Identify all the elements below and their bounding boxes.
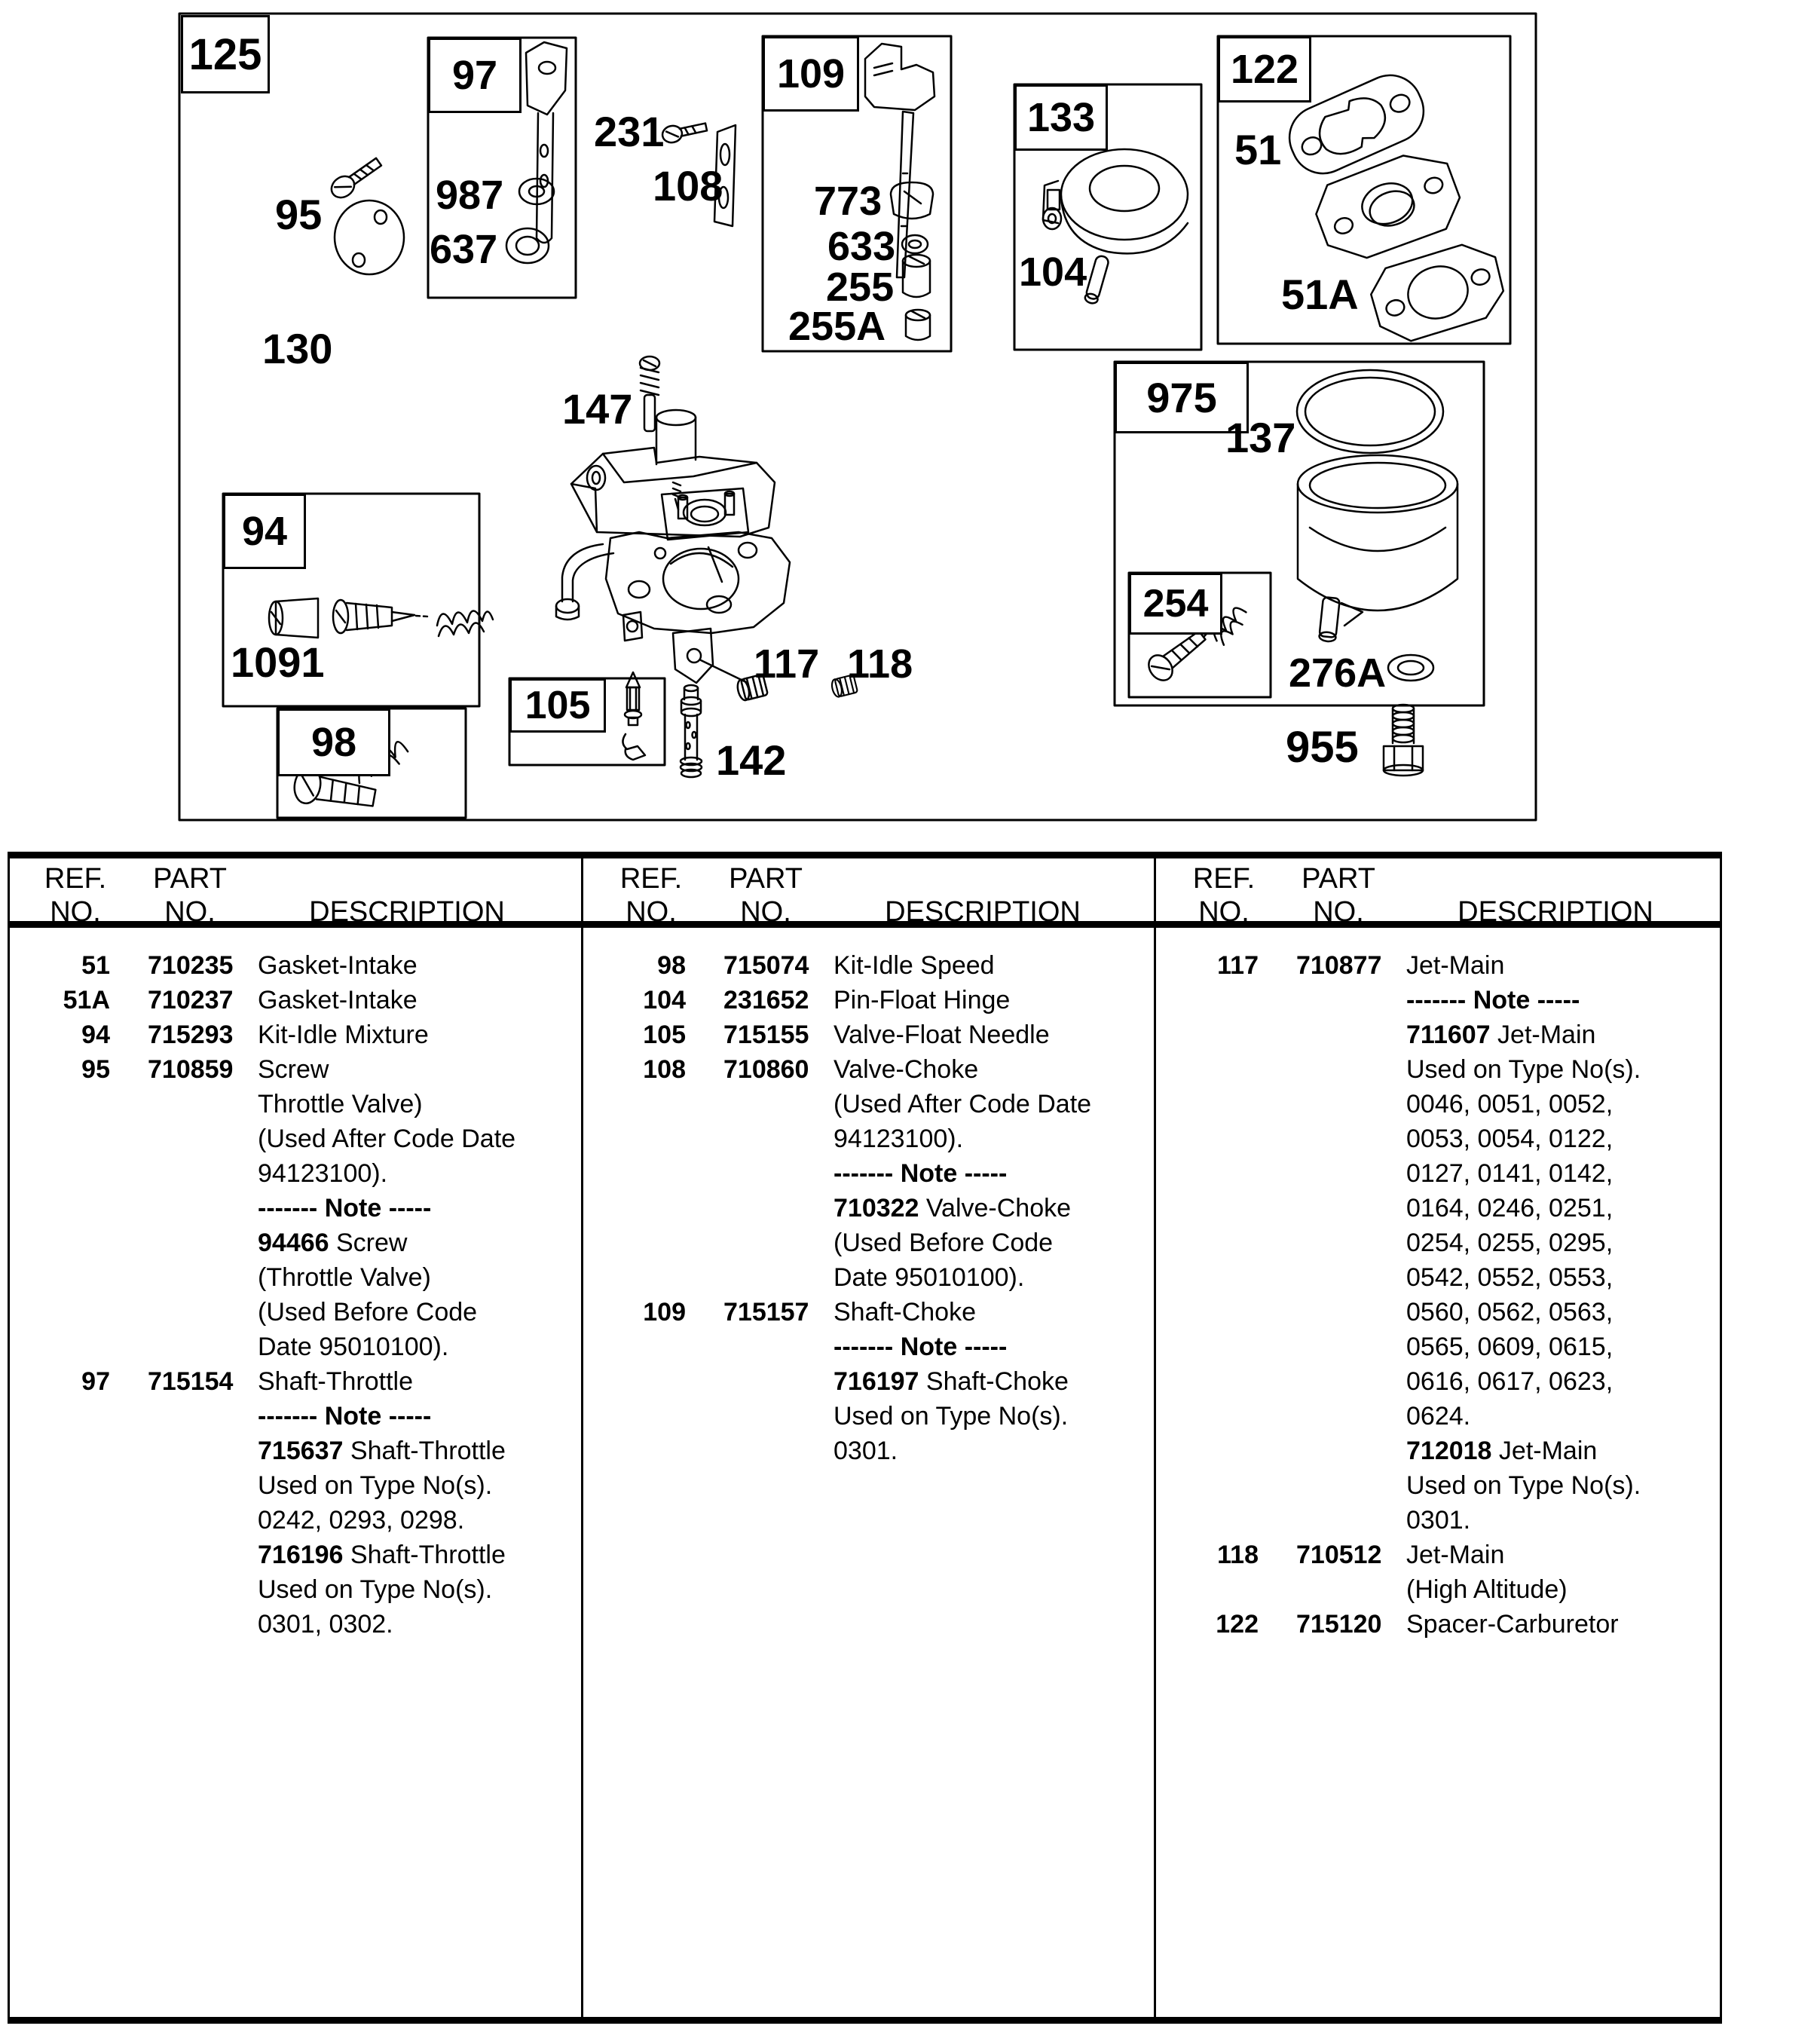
description-line: 0301, 0302. [258,1607,581,1642]
description: Jet-Main------- Note -----711607 Jet-Mai… [1406,948,1720,1538]
description: Kit-Idle Mixture [258,1017,581,1052]
header-part-no: PARTNO. [713,862,818,929]
ref-no: 122 [1177,1607,1259,1642]
part-no: 710237 [148,983,233,1017]
header-description: DESCRIPTION [264,895,550,929]
part-no: 710512 [1296,1538,1381,1572]
table-column-body: 51710235Gasket-Intake51A710237Gasket-Int… [8,948,581,1642]
description-line: 0053, 0054, 0122, [1406,1122,1720,1156]
description-line: Valve-Choke [834,1052,1154,1087]
table-column-body: 117710877Jet-Main------- Note -----71160… [1156,948,1720,1642]
description-line: 0616, 0617, 0623, [1406,1364,1720,1399]
description-line: 94123100). [258,1156,581,1191]
description-line: (Throttle Valve) [258,1260,581,1295]
description-line: ------- Note ----- [258,1399,581,1434]
ref-no: 104 [604,983,686,1017]
table-column-body: 98715074Kit-Idle Speed104231652Pin-Float… [583,948,1154,1468]
description-line: Screw [258,1052,581,1087]
description-line: 0254, 0255, 0295, [1406,1226,1720,1260]
ref-no: 108 [604,1052,686,1087]
table-row: 105715155Valve-Float Needle [583,1017,1154,1052]
description-line: Valve-Float Needle [834,1017,1154,1052]
table-row: 109715157Shaft-Choke------- Note -----71… [583,1295,1154,1468]
description: Gasket-Intake [258,983,581,1017]
description-line: Used on Type No(s). [258,1468,581,1503]
description-line: 711607 Jet-Main [1406,1017,1720,1052]
description-line: Date 95010100). [258,1330,581,1364]
description: Valve-Choke(Used After Code Date94123100… [834,1052,1154,1295]
description-line: 0127, 0141, 0142, [1406,1156,1720,1191]
description-line: 710322 Valve-Choke [834,1191,1154,1226]
table-row: 98715074Kit-Idle Speed [583,948,1154,983]
description-line: 94466 Screw [258,1226,581,1260]
description: Shaft-Throttle------- Note -----715637 S… [258,1364,581,1642]
part-no: 715120 [1296,1607,1381,1642]
description-line: Kit-Idle Speed [834,948,1154,983]
description-line: 0301. [1406,1503,1720,1538]
description-line: (Used Before Code [834,1226,1154,1260]
description-line: 0301. [834,1434,1154,1468]
description-line: 0046, 0051, 0052, [1406,1087,1720,1122]
description-line: Used on Type No(s). [258,1572,581,1607]
description-line: Gasket-Intake [258,948,581,983]
description-line: 716197 Shaft-Choke [834,1364,1154,1399]
description-line: ------- Note ----- [1406,983,1720,1017]
ref-no: 98 [604,948,686,983]
description-line: (High Altitude) [1406,1572,1720,1607]
ref-no: 51A [29,983,110,1017]
part-no: 715074 [723,948,809,983]
description-line: Date 95010100). [834,1260,1154,1295]
table-row: 122715120Spacer-Carburetor [1156,1607,1720,1642]
table-column-header: REF.NO.PARTNO.DESCRIPTION [583,862,1154,927]
header-description: DESCRIPTION [840,895,1126,929]
description-line: Jet-Main [1406,948,1720,983]
ref-no: 51 [29,948,110,983]
ref-no: 105 [604,1017,686,1052]
ref-no: 118 [1177,1538,1259,1572]
description-line: ------- Note ----- [258,1191,581,1226]
header-part-no: PARTNO. [137,862,243,929]
description: Kit-Idle Speed [834,948,1154,983]
description-line: (Used Before Code [258,1295,581,1330]
part-no: 710877 [1296,948,1381,983]
table-row: 104231652Pin-Float Hinge [583,983,1154,1017]
description-line: Gasket-Intake [258,983,581,1017]
table-row: 51A710237Gasket-Intake [8,983,581,1017]
part-no: 710860 [723,1052,809,1087]
description: ScrewThrottle Valve)(Used After Code Dat… [258,1052,581,1364]
table-column-3: REF.NO.PARTNO.DESCRIPTION117710877Jet-Ma… [1156,852,1720,2023]
part-no: 715293 [148,1017,233,1052]
description-line: Shaft-Choke [834,1295,1154,1330]
description: Spacer-Carburetor [1406,1607,1720,1642]
description-line: 0164, 0246, 0251, [1406,1191,1720,1226]
description-line: 0242, 0293, 0298. [258,1503,581,1538]
table-right-border [1720,852,1722,2024]
description-line: 94123100). [834,1122,1154,1156]
description-line: (Used After Code Date [258,1122,581,1156]
description-line: ------- Note ----- [834,1156,1154,1191]
description-line: Jet-Main [1406,1538,1720,1572]
table-row: 117710877Jet-Main------- Note -----71160… [1156,948,1720,1538]
description-line: (Used After Code Date [834,1087,1154,1122]
description-line: Shaft-Throttle [258,1364,581,1399]
description-line: Pin-Float Hinge [834,983,1154,1017]
part-no: 710235 [148,948,233,983]
description-line: Spacer-Carburetor [1406,1607,1720,1642]
table-row: 97715154Shaft-Throttle------- Note -----… [8,1364,581,1642]
part-no: 715157 [723,1295,809,1330]
description-line: ------- Note ----- [834,1330,1154,1364]
description-line: 0542, 0552, 0553, [1406,1260,1720,1295]
ref-no: 94 [29,1017,110,1052]
description-line: Used on Type No(s). [834,1399,1154,1434]
table-column-header: REF.NO.PARTNO.DESCRIPTION [8,862,581,927]
parts-table: REF.NO.PARTNO.DESCRIPTION51710235Gasket-… [0,0,1820,2035]
description-line: Throttle Valve) [258,1087,581,1122]
table-row: 94715293Kit-Idle Mixture [8,1017,581,1052]
table-row: 108710860Valve-Choke(Used After Code Dat… [583,1052,1154,1295]
description-line: Used on Type No(s). [1406,1468,1720,1503]
table-row: 118710512Jet-Main(High Altitude) [1156,1538,1720,1607]
description-line: 0624. [1406,1399,1720,1434]
table-column-1: REF.NO.PARTNO.DESCRIPTION51710235Gasket-… [8,852,581,2023]
description-line: 716196 Shaft-Throttle [258,1538,581,1572]
table-column-header: REF.NO.PARTNO.DESCRIPTION [1156,862,1720,927]
part-no: 231652 [723,983,809,1017]
ref-no: 109 [604,1295,686,1330]
description-line: 0565, 0609, 0615, [1406,1330,1720,1364]
ref-no: 95 [29,1052,110,1087]
parts-catalog-page: 125 97 109 133 122 94 975 254 98 105 95 … [0,0,1820,2035]
description-line: 712018 Jet-Main [1406,1434,1720,1468]
description: Pin-Float Hinge [834,983,1154,1017]
part-no: 715155 [723,1017,809,1052]
header-description: DESCRIPTION [1412,895,1699,929]
table-row: 95710859ScrewThrottle Valve)(Used After … [8,1052,581,1364]
header-ref-no: REF.NO. [606,862,696,929]
ref-no: 117 [1177,948,1259,983]
description-line: Kit-Idle Mixture [258,1017,581,1052]
description: Shaft-Choke------- Note -----716197 Shaf… [834,1295,1154,1468]
description: Valve-Float Needle [834,1017,1154,1052]
table-column-2: REF.NO.PARTNO.DESCRIPTION98715074Kit-Idl… [583,852,1154,2023]
header-part-no: PARTNO. [1286,862,1391,929]
description-line: 715637 Shaft-Throttle [258,1434,581,1468]
ref-no: 97 [29,1364,110,1399]
header-ref-no: REF.NO. [30,862,121,929]
part-no: 715154 [148,1364,233,1399]
description: Gasket-Intake [258,948,581,983]
description-line: 0560, 0562, 0563, [1406,1295,1720,1330]
part-no: 710859 [148,1052,233,1087]
header-ref-no: REF.NO. [1179,862,1269,929]
table-row: 51710235Gasket-Intake [8,948,581,983]
description-line: Used on Type No(s). [1406,1052,1720,1087]
description: Jet-Main(High Altitude) [1406,1538,1720,1607]
